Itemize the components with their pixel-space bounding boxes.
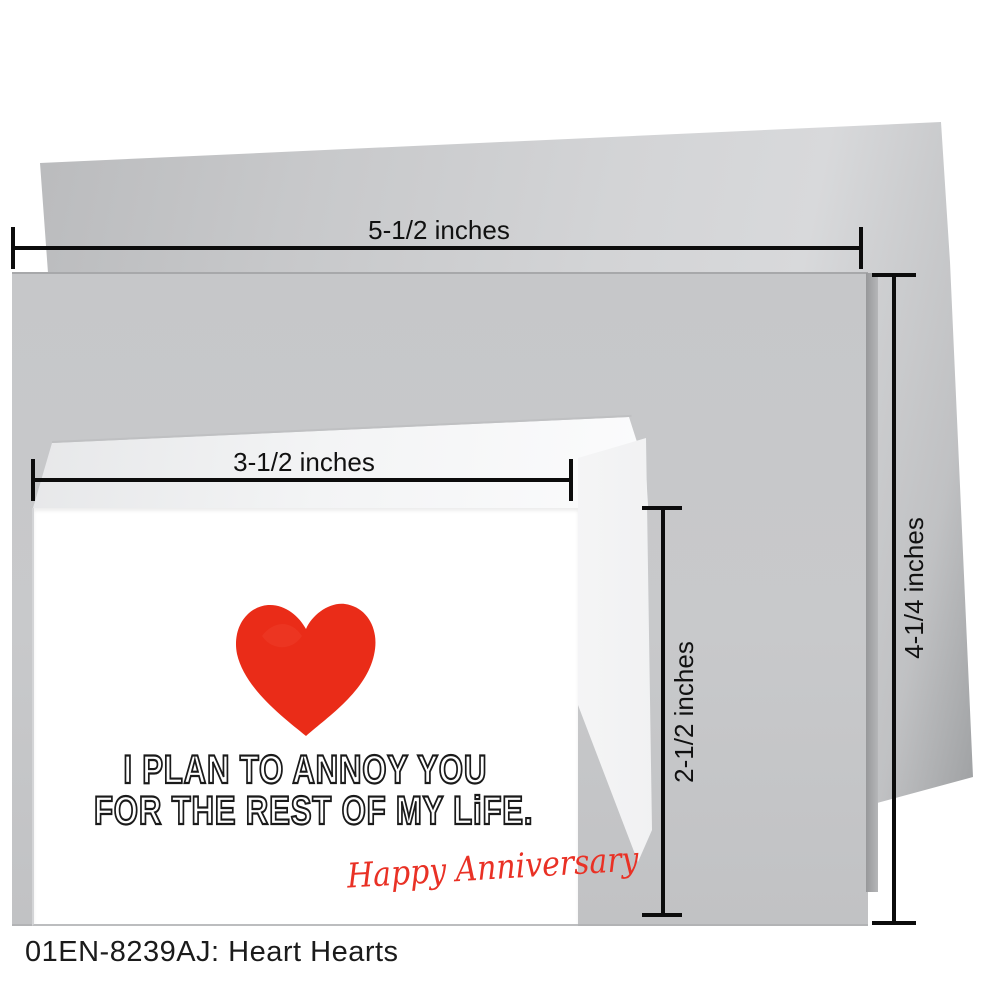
envelope-height-tick-top: [872, 273, 916, 277]
envelope-width-tick-right: [859, 227, 863, 269]
card-height-tick-bottom: [642, 913, 682, 917]
card-message-line1: I PLAN TO ANNOY YOU: [32, 750, 578, 790]
heart-icon: [232, 596, 380, 742]
envelope-shadow: [866, 273, 878, 892]
envelope-width-label: 5-1/2 inches: [289, 216, 589, 244]
card-height-tick-top: [642, 506, 682, 510]
envelope-height-label: 4-1/4 inches: [900, 517, 928, 659]
card-width-line: [33, 478, 573, 482]
product-diagram: I PLAN TO ANNOY YOU FOR THE REST OF MY L…: [0, 0, 984, 984]
card-height-label: 2-1/2 inches: [670, 641, 698, 783]
card-width-label: 3-1/2 inches: [154, 448, 454, 476]
envelope-height-tick-bottom: [872, 921, 916, 925]
envelope-width-tick-left: [11, 227, 15, 269]
envelope-height-line: [892, 275, 896, 925]
card-width-tick-right: [569, 459, 573, 501]
card-signature: Happy Anniversary: [327, 848, 557, 888]
product-code-caption: 01EN-8239AJ: Heart Hearts: [25, 936, 399, 968]
card-message-line2: FOR THE REST OF MY LiFE.: [32, 791, 578, 831]
card-width-tick-left: [31, 459, 35, 501]
envelope-width-line: [13, 246, 863, 250]
card-height-line: [661, 508, 665, 917]
